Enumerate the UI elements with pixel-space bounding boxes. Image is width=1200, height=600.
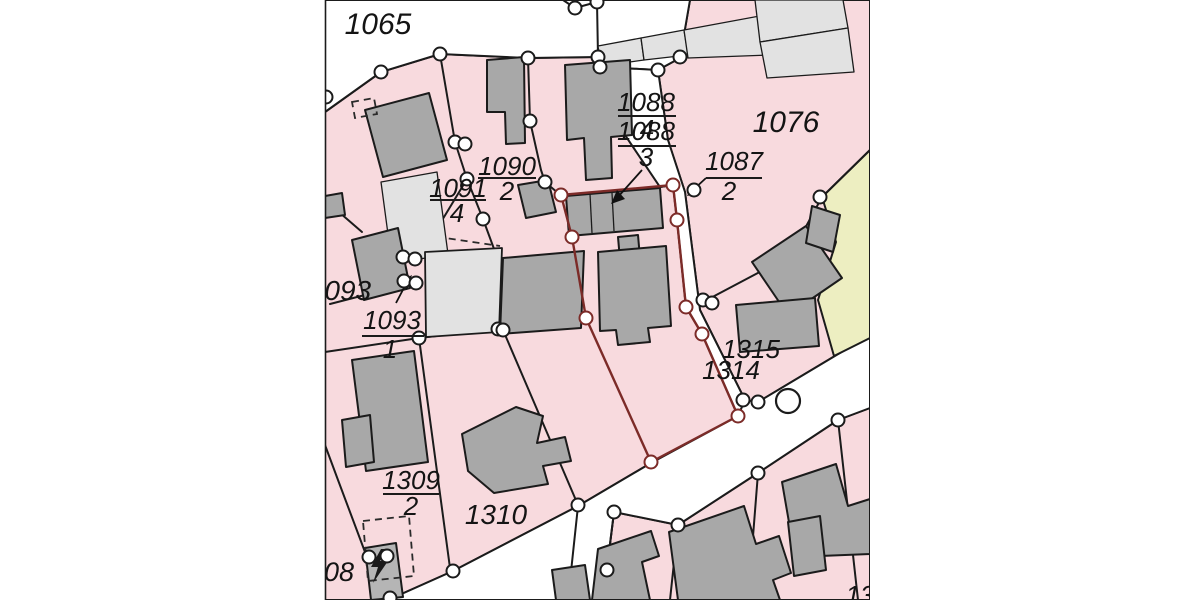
parcel-label-1065: 1065 (345, 8, 412, 41)
building (552, 565, 590, 600)
boundary-vertex (572, 499, 585, 512)
boundary-vertex (608, 506, 621, 519)
boundary-vertex (569, 2, 582, 15)
map-margin-right (870, 0, 1200, 600)
fraction-label-1093-den: 1 (383, 334, 397, 364)
cadastral-map-svg: 1065 1076 1093 1310 1315 1314 1308 13 10… (0, 0, 1200, 600)
boundary-vertex (434, 48, 447, 61)
building (325, 193, 345, 218)
boundary-vertex (594, 61, 607, 74)
parcel-label-1310: 1310 (465, 499, 528, 530)
fraction-label-1088a-num: 1088 (617, 87, 675, 117)
boundary-vertex (737, 394, 750, 407)
selected-parcel-vertex (645, 456, 658, 469)
boundary-vertex (447, 565, 460, 578)
boundary-vertex (409, 253, 422, 266)
building (500, 251, 584, 334)
selected-parcel-vertex (555, 189, 568, 202)
fraction-label-1087-den: 2 (721, 176, 737, 206)
boundary-vertex (814, 191, 827, 204)
boundary-vertex (591, 0, 604, 9)
fraction-label-1087-num: 1087 (705, 146, 764, 176)
boundary-vertex (381, 550, 394, 563)
building (806, 206, 840, 252)
map-margin-left (0, 0, 325, 600)
parcel-label-1314: 1314 (702, 355, 760, 385)
fraction-label-1091-den: 4 (450, 198, 464, 228)
cadastral-map-view: 1065 1076 1093 1310 1315 1314 1308 13 10… (0, 0, 1200, 600)
boundary-vertex (497, 324, 510, 337)
boundary-vertex (524, 115, 537, 128)
parcel-label-1076: 1076 (753, 106, 820, 139)
boundary-vertex (832, 414, 845, 427)
boundary-vertex (477, 213, 490, 226)
boundary-vertex (459, 138, 472, 151)
selected-parcel-vertex (671, 214, 684, 227)
boundary-vertex (688, 184, 701, 197)
boundary-vertex (601, 564, 614, 577)
boundary-vertex (384, 592, 397, 600)
fraction-label-1309-den: 2 (403, 491, 419, 521)
boundary-vertex (375, 66, 388, 79)
selected-parcel-vertex (680, 301, 693, 314)
boundary-vertex (363, 551, 376, 564)
survey-point-large (776, 389, 800, 413)
building (788, 516, 826, 576)
fraction-label-1088b-den: 3 (639, 142, 654, 172)
boundary-vertex (652, 64, 665, 77)
boundary-vertex (397, 251, 410, 264)
building (342, 415, 374, 467)
boundary-vertex (706, 297, 719, 310)
fraction-label-1090-den: 2 (499, 176, 515, 206)
boundary-vertex (398, 275, 411, 288)
boundary-vertex (410, 277, 423, 290)
selected-parcel-vertex (667, 179, 680, 192)
selected-parcel-vertex (696, 328, 709, 341)
selected-parcel-vertex (580, 312, 593, 325)
courtyard-light-area (425, 248, 502, 337)
selected-parcel-vertex (732, 410, 745, 423)
selected-parcel-vertex (566, 231, 579, 244)
boundary-vertex (539, 176, 552, 189)
boundary-vertex (752, 396, 765, 409)
boundary-vertex (752, 467, 765, 480)
fraction-label-1093-num: 1093 (363, 305, 421, 335)
boundary-vertex (674, 51, 687, 64)
boundary-vertex (672, 519, 685, 532)
boundary-vertex (522, 52, 535, 65)
